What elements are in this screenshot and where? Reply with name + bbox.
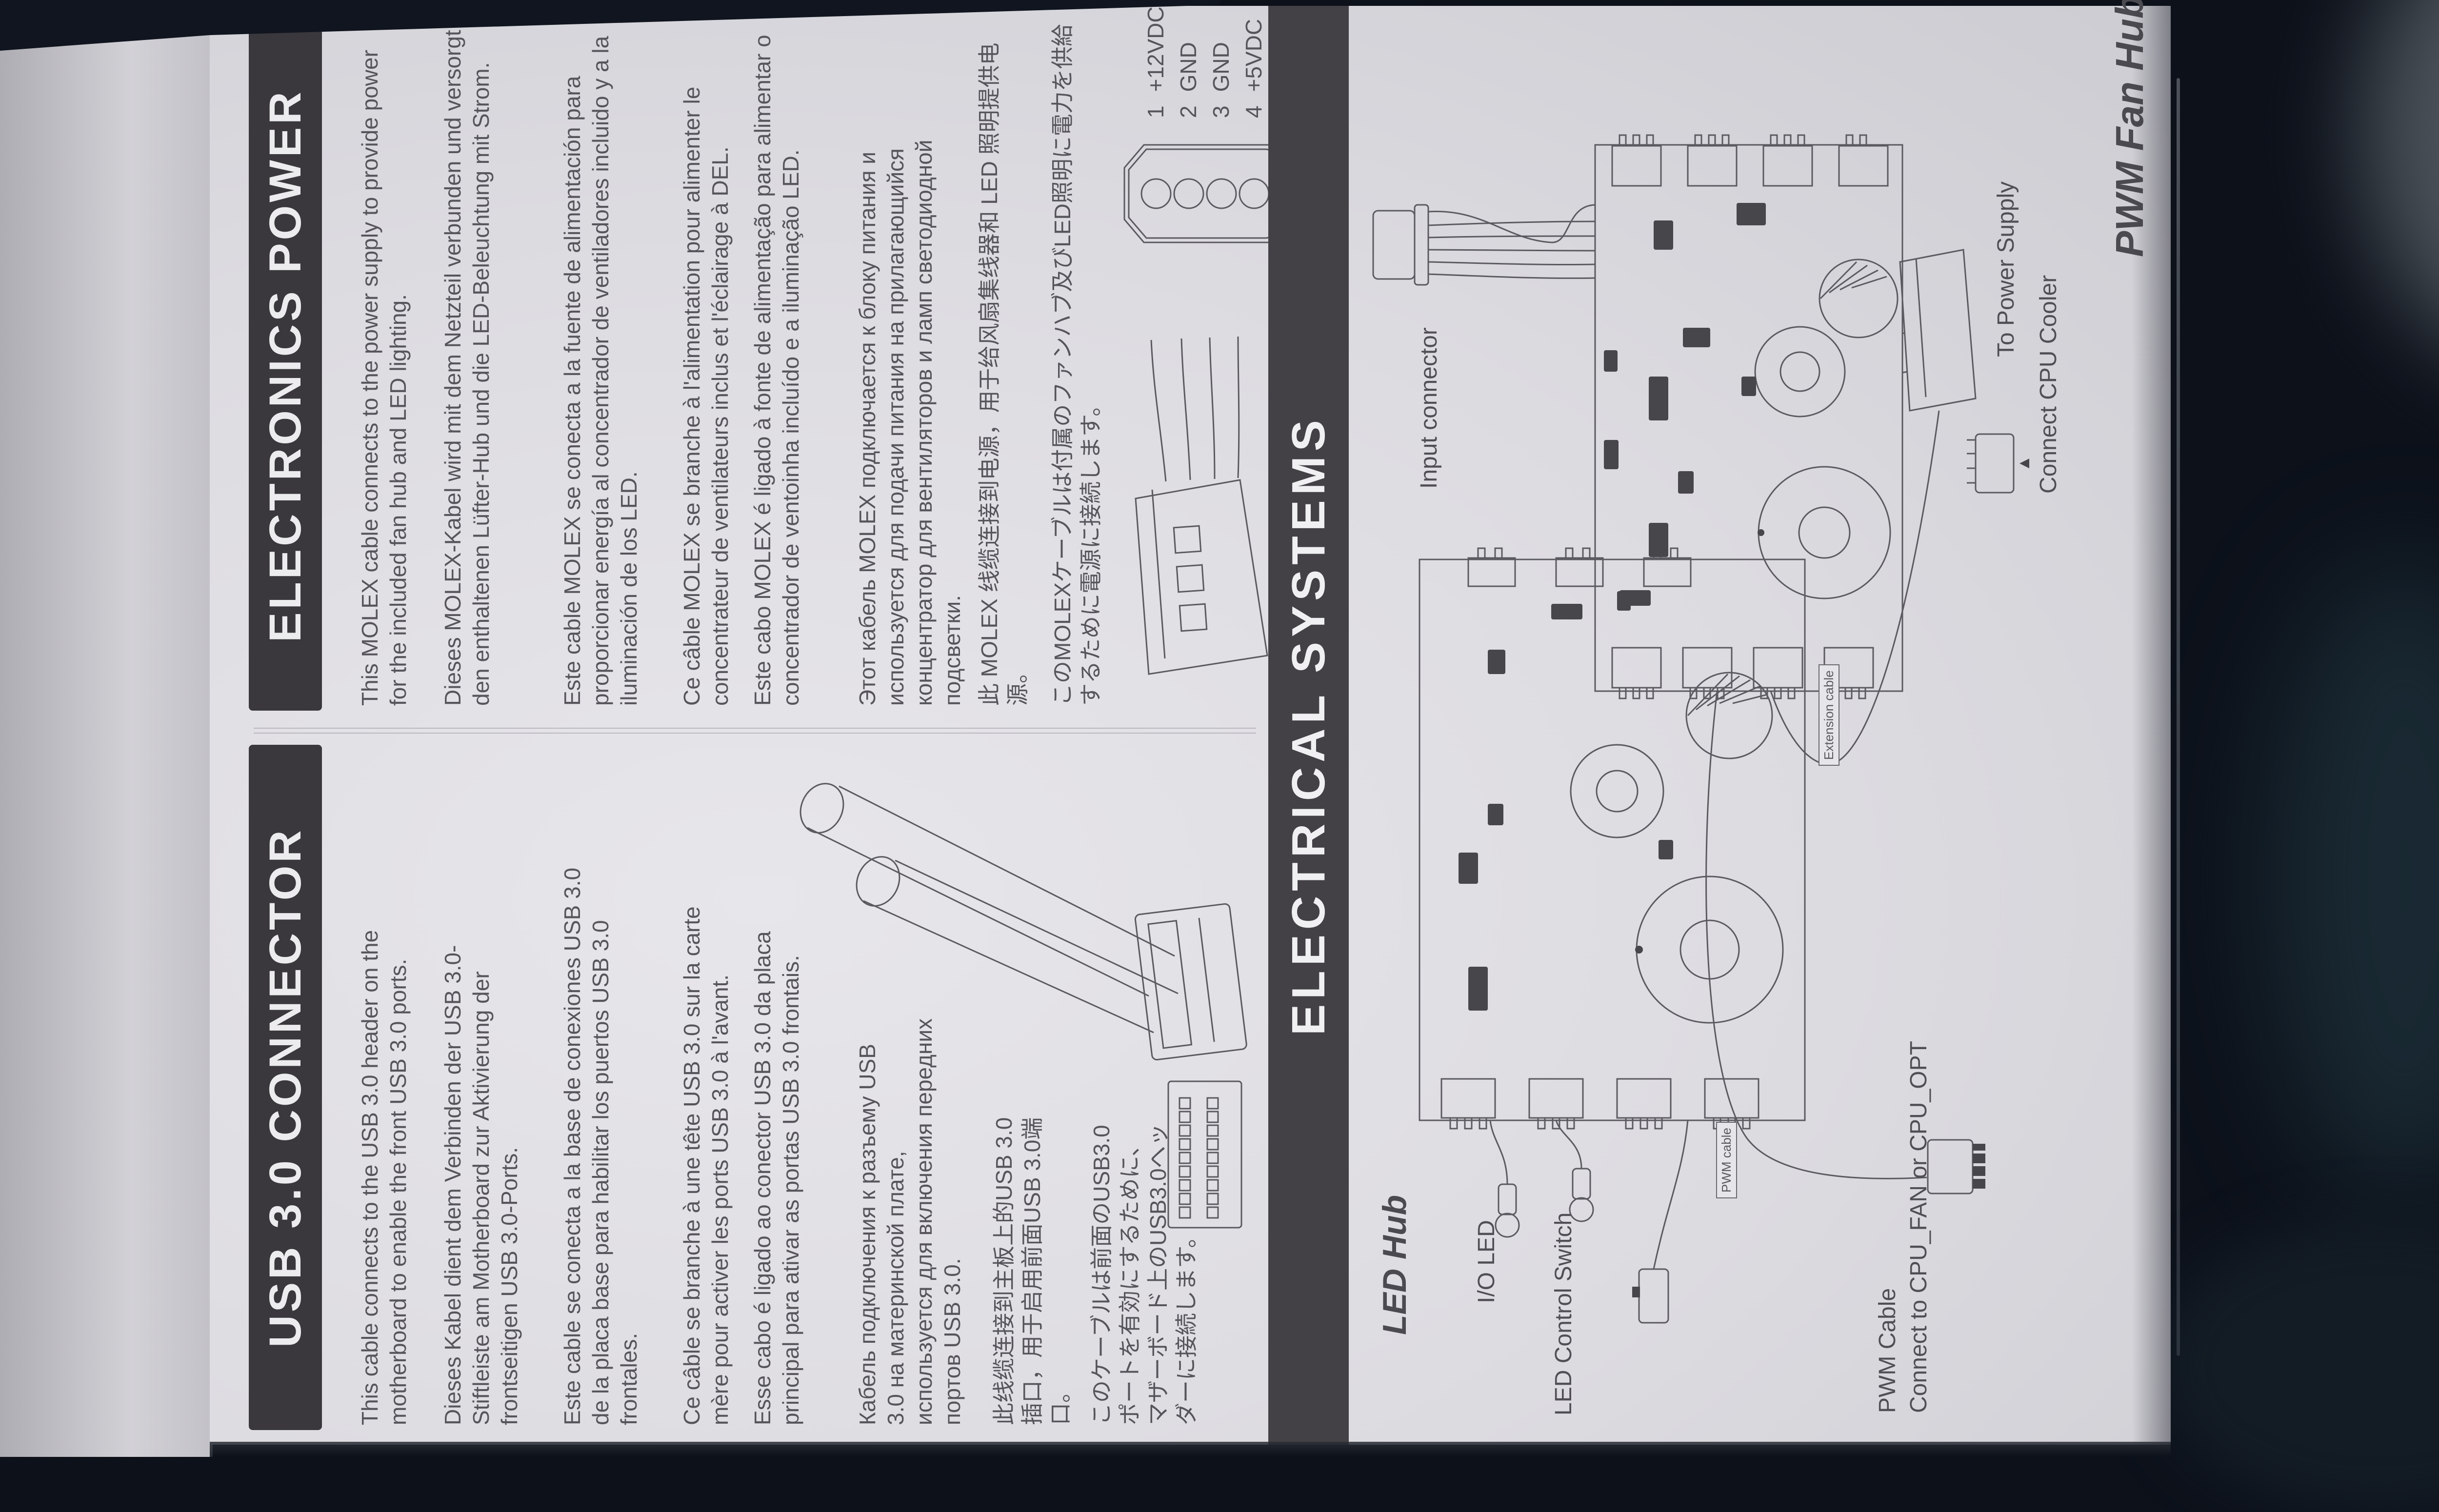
booklet-edge-highlight [2177, 78, 2180, 1356]
background-blur-blob [2156, 1219, 2439, 1512]
pwm-fan-hub-pcb-drawing [1346, 6, 2171, 1201]
pin-label: GND [1208, 42, 1234, 92]
pin-number: 3 [1208, 105, 1234, 118]
usb-section-header: USB 3.0 CONNECTOR [249, 745, 322, 1430]
cpu-cooler-arrow-icon: ▲ [2015, 455, 2034, 472]
connect-cpu-cooler-label: Connect CPU Cooler [2035, 275, 2062, 494]
power-paragraph-de: Dieses MOLEX-Kabel wird mit dem Netzteil… [439, 23, 496, 706]
pwm-cable-tag: PWM cable [1716, 1122, 1737, 1198]
usb-section-title: USB 3.0 CONNECTOR [260, 827, 311, 1347]
electrical-systems-title: ELECTRICAL SYSTEMS [1282, 415, 1336, 1035]
booklet-left-page-edge [0, 28, 213, 1457]
power-paragraph-ja: このMOLEXケーブルは付属のファンハブ及びLED照明に電力を供給するために電源… [1049, 23, 1105, 706]
manual-page: USB 3.0 CONNECTOR ELECTRONICS POWER This… [210, 6, 2171, 1445]
pin-label: +12VDC [1142, 6, 1169, 92]
pin-row: 3GND [1204, 6, 1237, 118]
extension-cable-tag: Extension cable [1819, 664, 1839, 766]
pwm-cable-label-line1: PWM Cable [1874, 1288, 1901, 1413]
power-paragraph-en: This MOLEX cable connects to the power s… [356, 23, 413, 706]
pin-label: +5VDC [1240, 19, 1267, 92]
power-paragraph-fr: Ce câble MOLEX se branche à l'alimentati… [678, 23, 735, 706]
power-section-header: ELECTRONICS POWER [249, 20, 322, 711]
electrical-systems-header: ELECTRICAL SYSTEMS [1268, 6, 1349, 1445]
pin-number: 2 [1175, 105, 1201, 118]
pwm-cable-label-line2: Connect to CPU_FAN or CPU_OPT [1905, 1041, 1932, 1413]
pin-row: 2GND [1172, 6, 1204, 118]
to-power-supply-label: To Power Supply [1993, 181, 2019, 357]
power-paragraph-es: Este cable MOLEX se conecta a la fuente … [559, 23, 643, 706]
rotated-page-stage: USB 3.0 CONNECTOR ELECTRONICS POWER This… [210, 6, 2171, 1445]
molex-pinout-labels: 1+12VDC 2GND 3GND 4+5VDC [1139, 6, 1270, 118]
power-paragraph-ru: Этот кабель MOLEX подключается к блоку п… [854, 23, 967, 706]
pin-row: 1+12VDC [1139, 6, 1172, 118]
pin-number: 1 [1142, 105, 1169, 118]
usb-paragraph-es: Este cable se conecta a la base de conex… [559, 864, 643, 1425]
usb-paragraph-en: This cable connects to the USB 3.0 heade… [356, 864, 413, 1425]
photo-dark-bottom-edge [210, 1442, 2171, 1457]
usb3-cable-drawing [766, 728, 1268, 1240]
power-section-title: ELECTRONICS POWER [260, 89, 311, 642]
pin-row: 4+5VDC [1237, 6, 1270, 118]
pin-label: GND [1175, 42, 1201, 92]
photo-background: USB 3.0 CONNECTOR ELECTRONICS POWER This… [0, 0, 2439, 1457]
molex-connector-drawing [1127, 333, 1283, 703]
power-paragraph-pt: Este cabo MOLEX é ligado à fonte de alim… [749, 23, 805, 706]
background-blur-blob [2361, 0, 2439, 371]
pin-number: 4 [1240, 105, 1267, 118]
pwm-fan-hub-title: PWM Fan Hub [2107, 0, 2152, 257]
power-paragraph-zh: 此 MOLEX 线缆连接到电源，用于给风扇集线器和 LED 照明提供电源。 [976, 23, 1032, 706]
molex-pinout-drawing [1117, 138, 1283, 250]
background-blur-blob [2268, 561, 2439, 1195]
usb-paragraph-fr: Ce câble se branche à une tête USB 3.0 s… [678, 864, 735, 1425]
usb-paragraph-de: Dieses Kabel dient dem Verbinden der USB… [439, 864, 524, 1425]
